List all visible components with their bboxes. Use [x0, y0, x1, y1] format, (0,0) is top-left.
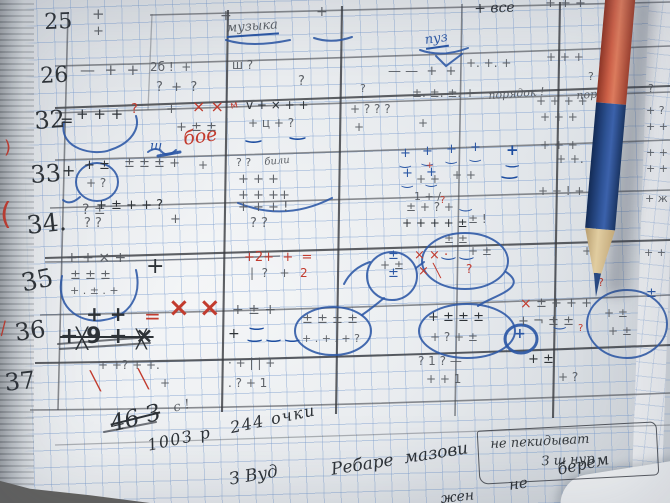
handwritten-mark: ? 1 ? —	[418, 358, 462, 365]
handwritten-mark: + ? + ±	[430, 334, 478, 341]
handwritten-mark: + ¬ ± ±	[518, 318, 574, 326]
handwritten-mark: ?	[440, 198, 445, 204]
handwritten-mark: ?	[578, 326, 583, 332]
handwritten-mark: +	[92, 10, 105, 19]
handwritten-mark: =	[144, 310, 161, 322]
handwritten-mark: + + +	[238, 176, 279, 184]
handwritten-mark: +2+ + =	[244, 254, 312, 262]
handwritten-mark: +	[62, 166, 75, 176]
handwritten-mark: 2	[300, 270, 308, 277]
handwritten-mark: × ×	[168, 300, 221, 316]
handwritten-mark: + +	[646, 166, 668, 173]
handwritten-mark: ×	[520, 300, 532, 309]
handwritten-mark: (	[0, 206, 12, 225]
handwritten-mark: ╳	[76, 332, 88, 344]
handwritten-mark: ш ?	[232, 62, 253, 69]
handwritten-mark: × ╲	[418, 268, 441, 276]
handwritten-mark: +	[514, 330, 526, 339]
handwritten-mark: ‿	[502, 164, 517, 175]
handwritten-mark: + + +	[76, 110, 123, 119]
handwritten-word: пуз	[424, 31, 449, 50]
handwritten-mark: + + ++	[238, 192, 290, 200]
row-number: 35	[20, 269, 54, 291]
handwritten-mark: ± + + +	[536, 300, 592, 308]
handwritten-mark: + ± ± ±	[428, 314, 484, 322]
handwritten-mark: + ‿	[446, 146, 457, 162]
handwritten-mark: + +	[86, 308, 126, 320]
handwritten-mark: +	[198, 162, 208, 169]
handwritten-mark: + + ! +	[644, 250, 670, 257]
handwritten-mark: + + + + ±	[402, 220, 468, 227]
handwritten-mark: ‿	[554, 318, 565, 327]
handwritten-mark: + . ± . +	[70, 288, 119, 295]
handwritten-mark: + + + !	[238, 204, 288, 212]
handwritten-mark: + ± + + ?	[96, 202, 163, 210]
notebook-photo: 2526323334.353637 +++++ + +— + +2б ! +ш …	[0, 0, 670, 503]
handwritten-mark: ? ?	[250, 220, 268, 228]
handwritten-mark: + ±	[604, 310, 628, 317]
handwritten-mark: + +.	[556, 156, 584, 163]
handwritten-mark: ?	[298, 78, 305, 86]
handwritten-word: + все	[474, 1, 515, 16]
handwritten-mark: + ?	[558, 374, 578, 381]
handwritten-mark: + ‿	[400, 150, 411, 166]
handwritten-mark: ± ± ± +	[124, 160, 180, 168]
handwritten-mark: ╲	[90, 376, 101, 387]
handwritten-mark: + ‿	[426, 169, 437, 185]
handwritten-mark: + + +	[540, 142, 578, 149]
handwritten-mark: ?	[131, 106, 138, 114]
row-number: 33	[30, 166, 62, 183]
handwritten-word: с !	[172, 398, 191, 415]
handwritten-mark: +	[146, 260, 164, 274]
handwritten-mark: — + +	[80, 66, 139, 75]
handwritten-mark: + + ! +	[538, 188, 584, 195]
handwritten-mark: ?	[466, 266, 472, 273]
handwritten-mark: · + | | +	[228, 360, 275, 367]
note-box: не пекидыват З ш нур	[477, 421, 660, 484]
handwritten-mark: + ±	[528, 356, 554, 364]
handwritten-mark: | ? +	[250, 270, 290, 277]
handwritten-mark: ?	[648, 86, 654, 93]
handwritten-mark: 2б ! +	[150, 64, 191, 71]
handwritten-mark: + +? + +.	[98, 362, 160, 369]
note-line-1: не пекидыват	[490, 432, 590, 452]
handwritten-mark: ?	[360, 86, 366, 93]
handwritten-mark: ‿ ‿ ‿	[248, 328, 299, 338]
handwritten-mark: ‿ ‿	[442, 246, 473, 256]
handwritten-mark: +	[166, 106, 177, 114]
row-number: 25	[44, 15, 72, 30]
page-stack-edge	[0, 0, 34, 503]
handwritten-mark: + ?	[646, 108, 665, 115]
handwritten-mark: + + +	[540, 114, 578, 121]
handwritten-mark: v + × + +	[246, 102, 309, 109]
handwritten-mark: + ?	[86, 180, 106, 187]
handwritten-mark: + ±	[380, 262, 404, 269]
handwritten-mark: + + × +	[66, 254, 126, 263]
handwritten-mark: ‿	[460, 200, 471, 209]
handwritten-mark: + . + . + ?	[302, 336, 360, 343]
handwritten-mark: +	[93, 28, 104, 36]
handwritten-mark: =	[60, 116, 73, 126]
row-number: 36	[14, 322, 46, 341]
handwritten-mark: + + 1	[426, 376, 461, 383]
handwritten-mark: + ‿	[402, 170, 413, 186]
row-number: 34.	[26, 214, 67, 234]
handwritten-mark: ? ?	[84, 220, 102, 228]
handwritten-mark: + ±	[608, 328, 632, 335]
handwritten-mark: м	[230, 102, 239, 110]
handwritten-mark: +	[170, 216, 181, 224]
handwritten-mark: ? ?	[236, 160, 251, 167]
handwritten-mark: — — + +	[388, 68, 456, 76]
handwritten-mark: + ? ? ?	[350, 106, 391, 113]
handwritten-word: ш	[150, 140, 162, 153]
handwritten-word: бое	[182, 125, 219, 149]
handwritten-mark: +	[418, 120, 428, 127]
handwritten-mark: ╲	[138, 374, 149, 385]
handwritten-mark: ± ± ± ±	[302, 316, 358, 324]
handwritten-mark: )	[4, 142, 11, 153]
handwritten-mark: +	[228, 330, 240, 339]
handwritten-mark: +	[354, 124, 364, 131]
handwritten-mark: ╳	[136, 334, 147, 345]
pencil-wood-tip	[581, 228, 615, 276]
handwritten-mark: +	[160, 380, 170, 387]
handwritten-word: жен	[440, 489, 475, 503]
handwritten-mark: + +	[646, 150, 668, 157]
handwritten-mark: +	[316, 8, 328, 17]
handwritten-mark: ±. ±. ±. +	[412, 90, 475, 97]
row-number: 26	[40, 69, 69, 84]
handwritten-mark: ±	[646, 290, 657, 298]
handwritten-mark: + +	[646, 124, 668, 131]
handwritten-mark: ± + ? +	[406, 204, 454, 211]
handwritten-mark: ‿	[290, 125, 305, 136]
handwritten-mark: ? + ?	[156, 84, 197, 92]
handwritten-mark: + ±	[84, 162, 110, 170]
handwritten-mark: . ? + 1	[228, 380, 267, 387]
handwritten-mark: +	[220, 12, 232, 21]
pencil-lead-point	[579, 272, 611, 299]
handwritten-mark: + + +	[545, 0, 586, 8]
handwritten-mark: × ×	[192, 102, 224, 112]
note-line-2: З ш нур	[541, 452, 595, 470]
row-number: 37	[4, 373, 36, 391]
handwritten-mark: ± !	[468, 216, 487, 223]
handwritten-mark: + + +	[546, 54, 584, 61]
handwritten-mark: + +	[452, 172, 476, 179]
handwritten-mark: ‿	[246, 128, 261, 139]
handwritten-mark: + ж +	[645, 196, 670, 203]
handwritten-mark: + ‿	[470, 144, 481, 160]
handwritten-mark: ± ± ±	[70, 272, 111, 280]
handwritten-mark: +. +. +	[466, 60, 511, 67]
